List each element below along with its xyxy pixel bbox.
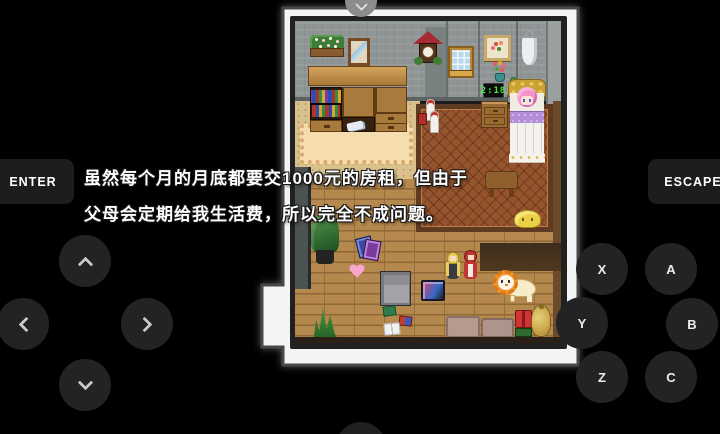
c-button-label: C xyxy=(666,370,675,385)
x-button-label: X xyxy=(598,262,607,277)
planter-flowers xyxy=(315,38,318,41)
enter-button[interactable]: ENTER xyxy=(0,159,74,204)
wardrobe-mid-shelf xyxy=(342,117,375,132)
table-leg xyxy=(489,189,494,197)
bed-skirt xyxy=(509,154,545,163)
lantern-cloth xyxy=(522,38,537,65)
doll-robe xyxy=(464,262,477,279)
milk-bottles xyxy=(418,99,440,133)
flower-planter xyxy=(310,35,344,57)
escape-button[interactable]: ESCAPE xyxy=(648,159,720,204)
dialog-text-line1: 虽然每个月的月底都要交1000元的房租，但由于 xyxy=(84,164,468,189)
dialog-text-line2: 父母会定期给我生活费，所以完全不成问题。 xyxy=(84,200,444,225)
cuckoo-wreath xyxy=(414,57,423,65)
picture-frame-fish xyxy=(348,38,370,66)
cuckoo-face xyxy=(422,46,434,58)
dpad-down-button[interactable] xyxy=(59,359,111,411)
girl-eyes xyxy=(523,99,525,102)
nightstand xyxy=(481,101,508,128)
laptop-picture xyxy=(421,280,445,301)
screen: 2:18 xyxy=(0,0,720,434)
open-book xyxy=(384,322,401,335)
escape-button-label: ESCAPE xyxy=(664,175,720,189)
dpad-right-button[interactable] xyxy=(121,298,173,350)
drawer-handle xyxy=(324,125,330,128)
gray-cabinet xyxy=(380,271,411,306)
gift-base xyxy=(515,328,532,337)
doll-face xyxy=(468,255,474,260)
a-button[interactable]: A xyxy=(645,243,697,295)
red-jar xyxy=(418,113,427,125)
table-top xyxy=(485,171,518,189)
chevron-down-icon xyxy=(355,0,368,11)
doll-face xyxy=(450,256,456,261)
drawer-handle xyxy=(493,110,498,112)
bottom-shadow xyxy=(295,337,561,343)
magazine xyxy=(362,239,381,261)
a-button-label: A xyxy=(666,262,675,277)
doll-red-hood xyxy=(463,250,478,283)
wardrobe-right-doors xyxy=(375,87,407,113)
dpad-up-button[interactable] xyxy=(59,235,111,287)
small-table xyxy=(485,171,518,197)
enter-button-label: ENTER xyxy=(9,175,56,189)
digital-clock: 2:18 xyxy=(483,83,504,98)
dpad-left-button[interactable] xyxy=(0,298,49,350)
chevron-up-icon xyxy=(77,256,93,272)
drawer-handle xyxy=(493,120,498,122)
green-book xyxy=(382,305,396,317)
doll-apron xyxy=(468,264,473,277)
hanging-lantern xyxy=(522,30,537,66)
sack-tie xyxy=(539,304,544,309)
red-blue-books xyxy=(399,315,413,326)
picture-frame-flowers xyxy=(484,35,511,61)
b-button[interactable]: B xyxy=(666,298,718,350)
stone-slab xyxy=(446,316,480,338)
lion-leg xyxy=(510,295,515,302)
dark-floor-band xyxy=(480,243,561,271)
window-sill xyxy=(450,70,472,76)
bookshelf-books-row2 xyxy=(312,105,340,117)
bottle xyxy=(430,111,439,133)
cabinet-cornice xyxy=(308,66,407,86)
folded-cloth xyxy=(346,120,363,131)
gift-top xyxy=(515,310,532,328)
chevron-right-icon xyxy=(136,316,152,332)
girl-face xyxy=(521,96,533,105)
window-panes xyxy=(452,50,470,70)
bookshelf-drawer xyxy=(310,120,342,132)
doll-blonde xyxy=(446,252,460,283)
bed xyxy=(508,79,546,163)
lion-plush xyxy=(493,270,539,304)
floor-shadow-right xyxy=(553,101,561,343)
bed-sheet xyxy=(510,123,544,154)
chevron-down-icon xyxy=(77,374,93,390)
gift-box xyxy=(515,310,532,337)
flower-cluster xyxy=(493,62,497,66)
slime-eyes xyxy=(522,218,524,221)
vase-flowers xyxy=(491,61,508,83)
y-button[interactable]: Y xyxy=(556,297,608,349)
z-button-label: Z xyxy=(598,370,606,385)
money-sack xyxy=(531,305,551,337)
nightstand-drawer xyxy=(484,117,505,125)
planter-box xyxy=(310,48,344,57)
c-button[interactable]: C xyxy=(645,351,697,403)
stone-slab xyxy=(481,318,514,338)
clock-time: 2:18 xyxy=(481,86,507,96)
cabinet-front xyxy=(384,275,409,303)
x-button[interactable]: X xyxy=(576,243,628,295)
lion-eyes xyxy=(501,280,503,283)
chevron-left-icon xyxy=(18,316,34,332)
picture-flowers xyxy=(494,42,498,46)
y-button-label: Y xyxy=(578,316,587,331)
bottom-handle-button[interactable] xyxy=(336,422,386,434)
lion-nose xyxy=(505,284,508,286)
window xyxy=(448,46,474,78)
z-button[interactable]: Z xyxy=(576,351,628,403)
nightstand-drawer xyxy=(484,107,505,115)
cuckoo-clock xyxy=(413,31,443,65)
plant-pot xyxy=(316,250,334,264)
vase xyxy=(495,73,505,82)
cabinet-unit xyxy=(308,66,407,132)
b-button-label: B xyxy=(687,317,696,332)
lion-face xyxy=(498,275,514,290)
slime-creature xyxy=(514,210,541,228)
magazines xyxy=(357,235,381,263)
wardrobe-mid-doors xyxy=(342,87,375,117)
drawer-handle xyxy=(388,117,394,120)
bed-blanket xyxy=(510,111,544,123)
wardrobe-right-drawers xyxy=(375,113,407,132)
doll-hair-long xyxy=(446,262,449,276)
